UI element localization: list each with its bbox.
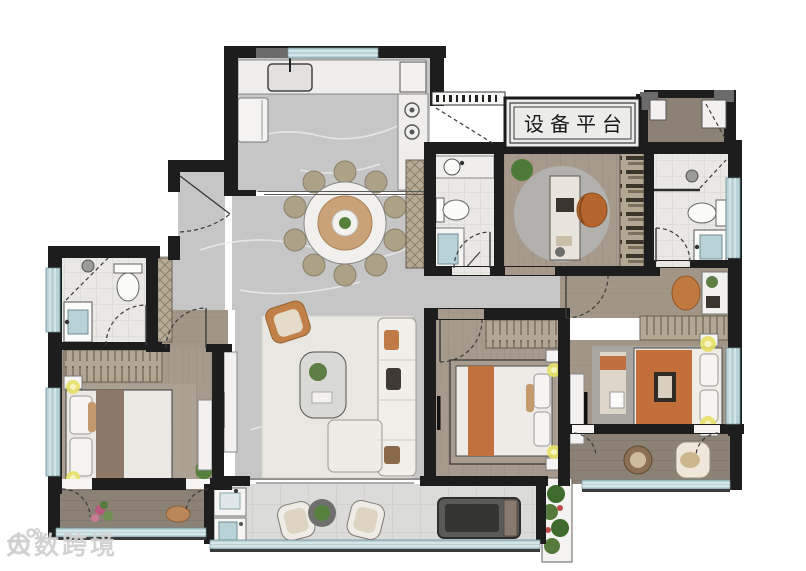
sink-icon xyxy=(694,230,726,264)
bedroom-left-bed xyxy=(66,390,172,482)
bedroom-middle-bed xyxy=(456,366,552,456)
equipment-platform-label: 设备平台 xyxy=(524,112,628,136)
floor-plan-page: 设备平台 大数跨境 xyxy=(0,0,806,571)
floor-plan: 设备平台 xyxy=(0,0,806,571)
toilet-icon xyxy=(436,198,469,222)
study-chair xyxy=(577,193,607,227)
watermark-logo-icon xyxy=(6,526,40,556)
balcony-master-window xyxy=(582,480,730,492)
sink-icon xyxy=(444,159,460,175)
treadmill xyxy=(438,498,520,538)
kitchen-cabinet xyxy=(400,62,426,92)
corridor-floor xyxy=(430,272,564,314)
refrigerator xyxy=(238,98,268,142)
kitchen-window xyxy=(288,48,378,58)
planter xyxy=(542,478,572,562)
equipment-platform: 设备平台 xyxy=(505,98,640,148)
corridor-wood-floor xyxy=(560,272,644,318)
bedroom-left-window xyxy=(46,388,60,476)
balcony-main-window xyxy=(210,540,540,552)
ac-grille xyxy=(432,92,505,144)
sink-icon xyxy=(64,302,92,342)
bedroom-middle-tv xyxy=(437,396,441,430)
study-wardrobe xyxy=(620,152,644,272)
shower-head-icon xyxy=(82,260,94,272)
bedroom-master-window xyxy=(726,348,740,424)
study-plant xyxy=(511,159,533,181)
watermark: 大数跨境 xyxy=(6,526,118,562)
bathroom-master-window xyxy=(726,178,740,258)
bathroom-left-window xyxy=(46,268,60,332)
study-desk xyxy=(550,176,580,260)
pouf xyxy=(672,276,700,310)
coffee-table xyxy=(300,352,346,418)
bedroom-middle-closet xyxy=(486,320,562,348)
dining-cabinet xyxy=(406,160,424,268)
shower-head-icon xyxy=(686,170,698,182)
shoe-cabinet xyxy=(156,258,172,342)
laundry-area xyxy=(214,488,246,544)
